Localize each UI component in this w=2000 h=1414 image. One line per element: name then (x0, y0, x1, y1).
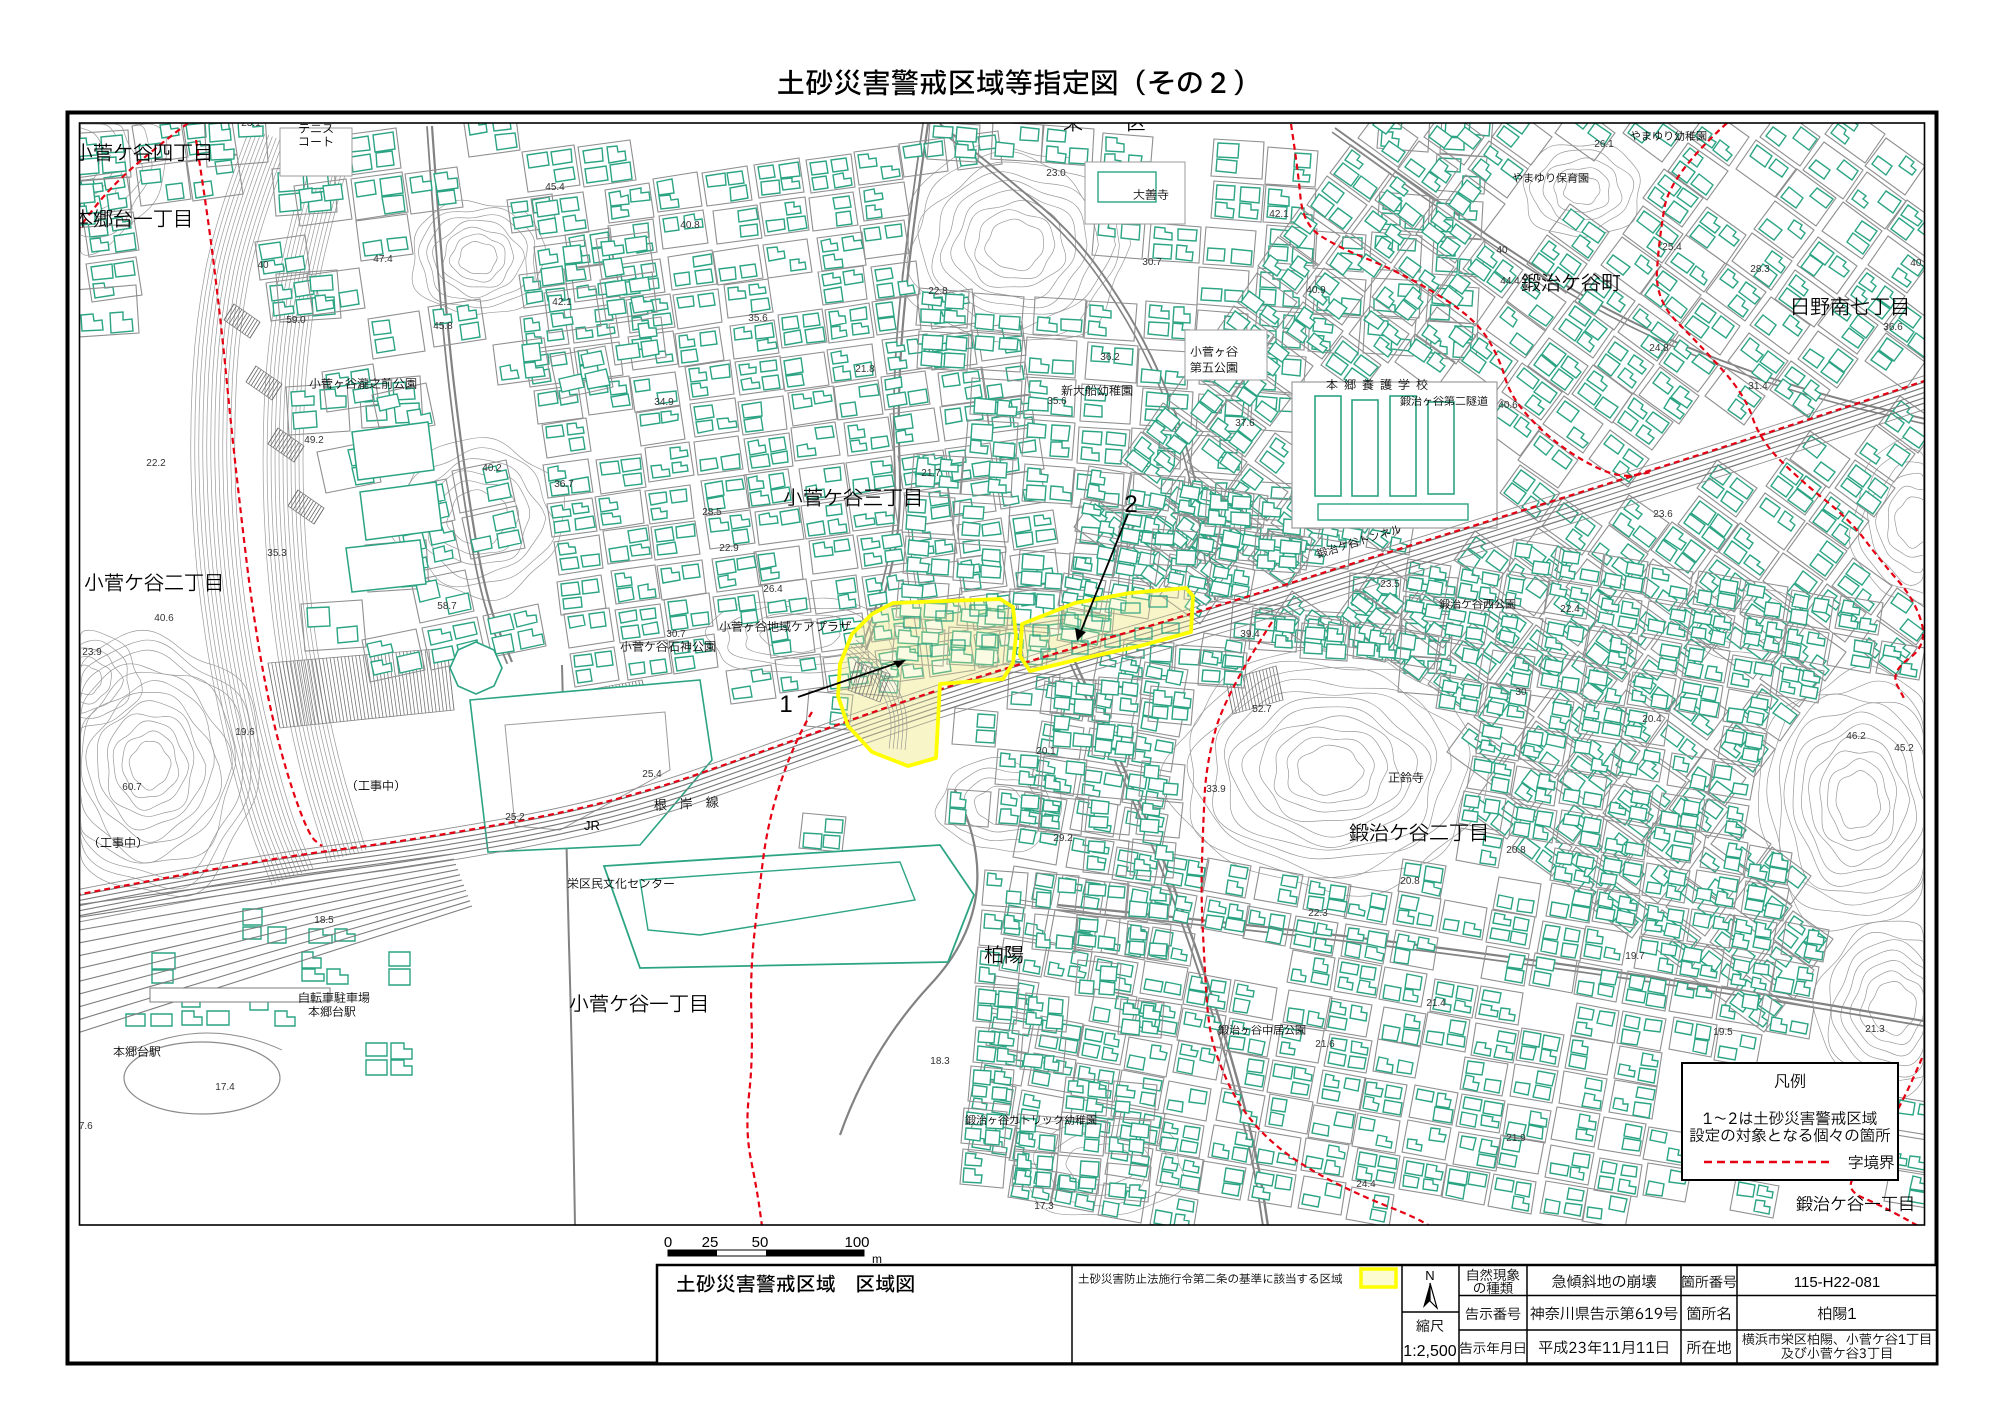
svg-text:30.7: 30.7 (666, 629, 686, 640)
svg-text:26.1: 26.1 (1594, 139, 1614, 150)
svg-text:30: 30 (1515, 687, 1527, 698)
svg-text:40.2: 40.2 (482, 463, 502, 474)
svg-text:JR: JR (584, 818, 600, 833)
svg-text:23.5: 23.5 (1380, 579, 1400, 590)
svg-text:23.0: 23.0 (1046, 168, 1066, 179)
svg-text:28.3: 28.3 (1750, 264, 1770, 275)
svg-text:36.2: 36.2 (1100, 352, 1120, 363)
svg-text:20.1: 20.1 (1036, 746, 1056, 757)
svg-text:40.6: 40.6 (1498, 400, 1518, 411)
svg-text:36.6: 36.6 (1883, 322, 1903, 333)
svg-text:45.8: 45.8 (433, 321, 453, 332)
svg-text:23.9: 23.9 (82, 647, 102, 658)
svg-text:26.4: 26.4 (763, 584, 783, 595)
svg-text:19.6: 19.6 (235, 727, 255, 738)
svg-text:45.4: 45.4 (545, 182, 565, 193)
svg-text:21.7: 21.7 (921, 468, 941, 479)
svg-text:40.8: 40.8 (680, 220, 700, 231)
svg-text:100: 100 (844, 1234, 869, 1251)
svg-text:40: 40 (257, 260, 269, 271)
svg-text:42.1: 42.1 (1269, 209, 1289, 220)
svg-text:34.9: 34.9 (654, 397, 674, 408)
svg-text:33.9: 33.9 (1206, 784, 1226, 795)
svg-text:24.4: 24.4 (1356, 1179, 1376, 1190)
svg-text:20.8: 20.8 (1400, 876, 1420, 887)
svg-text:24.8: 24.8 (1649, 343, 1669, 354)
svg-text:25: 25 (702, 1234, 719, 1251)
svg-text:1: 1 (779, 691, 792, 718)
svg-text:21.9: 21.9 (1506, 1133, 1526, 1144)
svg-text:21.6: 21.6 (1315, 1039, 1335, 1050)
svg-text:37.6: 37.6 (1235, 418, 1255, 429)
svg-text:22.2: 22.2 (146, 458, 166, 469)
svg-text:25.2: 25.2 (505, 812, 525, 823)
svg-text:60.7: 60.7 (122, 782, 142, 793)
svg-text:17.4: 17.4 (215, 1082, 235, 1093)
svg-text:47.4: 47.4 (373, 254, 393, 265)
svg-text:22.9: 22.9 (719, 543, 739, 554)
svg-text:25.4: 25.4 (1662, 242, 1682, 253)
svg-text:29.2: 29.2 (1053, 833, 1073, 844)
svg-text:2: 2 (1124, 491, 1137, 518)
svg-text:28.5: 28.5 (702, 507, 722, 518)
svg-text:31.4: 31.4 (1748, 381, 1768, 392)
svg-text:30.7: 30.7 (1142, 257, 1162, 268)
svg-text:18.3: 18.3 (930, 1056, 950, 1067)
svg-text:17.3: 17.3 (1034, 1201, 1054, 1212)
svg-text:40.6: 40.6 (154, 613, 174, 624)
svg-text:42.1: 42.1 (552, 297, 572, 308)
svg-text:36.7: 36.7 (554, 479, 574, 490)
svg-text:20.4: 20.4 (1642, 714, 1662, 725)
svg-text:50: 50 (752, 1234, 769, 1251)
svg-text:35.3: 35.3 (267, 548, 287, 559)
svg-text:44.4: 44.4 (1500, 276, 1520, 287)
svg-text:21.4: 21.4 (1426, 998, 1446, 1009)
svg-text:58.7: 58.7 (437, 601, 457, 612)
svg-text:22.8: 22.8 (928, 286, 948, 297)
svg-text:45.2: 45.2 (1894, 743, 1914, 754)
svg-text:0: 0 (664, 1234, 672, 1251)
svg-text:39.4: 39.4 (1240, 629, 1260, 640)
svg-text:22.3: 22.3 (1308, 908, 1328, 919)
svg-text:59.0: 59.0 (286, 315, 306, 326)
svg-text:23.6: 23.6 (1653, 509, 1673, 520)
svg-text:35.6: 35.6 (1047, 396, 1067, 407)
svg-text:49.2: 49.2 (304, 435, 324, 446)
svg-text:20.8: 20.8 (1506, 845, 1526, 856)
svg-text:19.5: 19.5 (1713, 1027, 1733, 1038)
svg-text:19.7: 19.7 (1625, 951, 1645, 962)
svg-text:1:2,500: 1:2,500 (1403, 1343, 1456, 1360)
svg-text:115-H22-081: 115-H22-081 (1794, 1274, 1880, 1291)
svg-text:21.8: 21.8 (855, 364, 875, 375)
svg-text:46.2: 46.2 (1846, 731, 1866, 742)
svg-text:21.3: 21.3 (1865, 1024, 1885, 1035)
svg-text:52.7: 52.7 (1252, 704, 1272, 715)
svg-text:40: 40 (1496, 245, 1508, 256)
svg-text:N: N (1425, 1268, 1434, 1283)
svg-text:40.9: 40.9 (1306, 285, 1326, 296)
svg-text:35.6: 35.6 (748, 313, 768, 324)
svg-text:22.4: 22.4 (1560, 604, 1580, 615)
svg-text:18.5: 18.5 (314, 915, 334, 926)
svg-text:25.4: 25.4 (642, 769, 662, 780)
